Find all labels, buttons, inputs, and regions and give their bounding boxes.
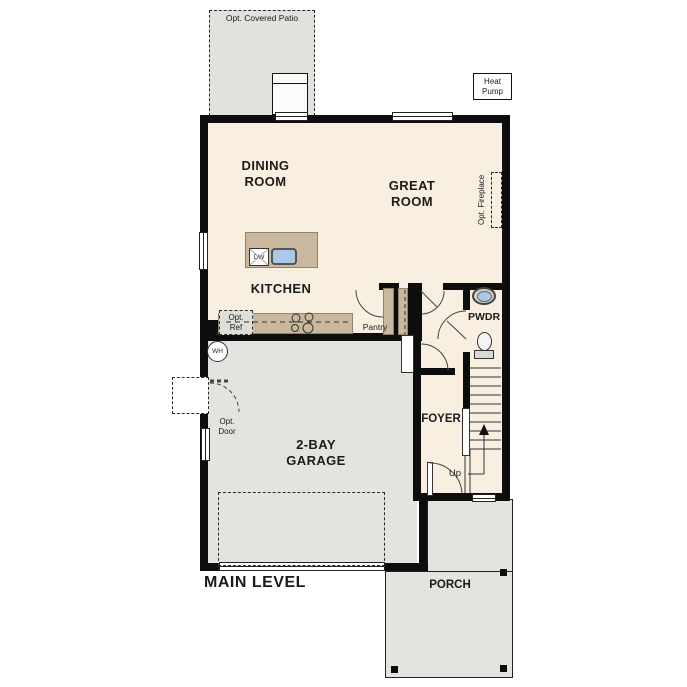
opt-ref-label-2: Ref xyxy=(220,323,252,333)
front-door-leaf xyxy=(427,462,433,496)
pantry-label: Pantry xyxy=(353,322,397,332)
wall-garage-right-step xyxy=(419,497,427,571)
wall-stair-left xyxy=(463,352,470,410)
wall-kitchen-stub xyxy=(200,320,218,341)
porch-label: PORCH xyxy=(408,579,492,591)
great-room-label: GREAT ROOM xyxy=(362,178,462,210)
opt-ref-box: Opt. Ref xyxy=(219,310,253,335)
window-greatroom-top xyxy=(392,112,453,121)
front-door-threshold xyxy=(472,494,496,502)
pwdr-sink-basin xyxy=(477,291,492,302)
porch-post-1 xyxy=(500,569,507,576)
wall-right xyxy=(502,115,510,501)
dining-room-label: DINING ROOM xyxy=(213,158,318,190)
island-sink xyxy=(271,248,297,265)
garage-door-dashed xyxy=(218,492,385,566)
opt-door-label-2: Door xyxy=(205,427,249,437)
heat-pump-box: Heat Pump xyxy=(473,73,512,100)
plan-title: MAIN LEVEL xyxy=(204,574,364,592)
wall-hall xyxy=(408,283,422,341)
wall-mudhall-stub xyxy=(421,368,455,375)
water-heater: WH xyxy=(207,341,228,362)
porch-post-2 xyxy=(391,666,398,673)
garage-entry-door-leaf xyxy=(401,335,414,373)
pwdr-toilet-bowl xyxy=(477,332,492,351)
dining-room-label-1: DINING xyxy=(213,158,318,174)
heat-pump-label-2: Pump xyxy=(474,87,511,97)
pwdr-label: PWDR xyxy=(463,311,505,323)
patio-structure-line xyxy=(273,74,307,84)
dishwasher-box: DW xyxy=(249,248,269,266)
patio-structure xyxy=(272,73,308,115)
garage-label: 2-BAY GARAGE xyxy=(256,437,376,469)
wall-left-upper xyxy=(200,115,208,341)
wall-hall-top-right xyxy=(443,283,463,290)
dining-room-label-2: ROOM xyxy=(213,174,318,190)
dishwasher-label: DW xyxy=(254,254,265,261)
opt-fireplace-label: Opt. Fireplace xyxy=(477,169,491,231)
opt-ref-label-1: Opt. xyxy=(220,311,252,323)
porch-post-3 xyxy=(500,665,507,672)
wall-pwdr-left-upper xyxy=(463,283,470,310)
garage-label-2: GARAGE xyxy=(256,453,376,469)
opt-door-label-1: Opt. xyxy=(205,417,249,427)
opt-door-stoop xyxy=(172,377,209,414)
garage-label-1: 2-BAY xyxy=(256,437,376,453)
opt-door-label: Opt. Door xyxy=(205,417,249,437)
window-dining-left xyxy=(199,232,208,270)
window-dining-top xyxy=(275,112,308,121)
foyer-label: FOYER xyxy=(415,413,467,425)
opt-covered-patio-label: Opt. Covered Patio xyxy=(212,13,312,23)
pwdr-sink xyxy=(472,287,496,305)
water-heater-label: WH xyxy=(212,348,223,355)
wall-top xyxy=(200,115,510,123)
great-room-label-1: GREAT xyxy=(362,178,462,194)
opt-fireplace-box xyxy=(491,172,502,228)
floor-plan: Opt. Covered Patio Heat Pump DW xyxy=(0,0,687,687)
great-room-label-2: ROOM xyxy=(362,194,462,210)
pwdr-toilet-tank xyxy=(474,350,494,359)
closet-shelf xyxy=(398,288,408,335)
kitchen-label: KITCHEN xyxy=(231,281,331,297)
up-label: Up xyxy=(444,468,466,479)
heat-pump-label-1: Heat xyxy=(474,74,511,87)
